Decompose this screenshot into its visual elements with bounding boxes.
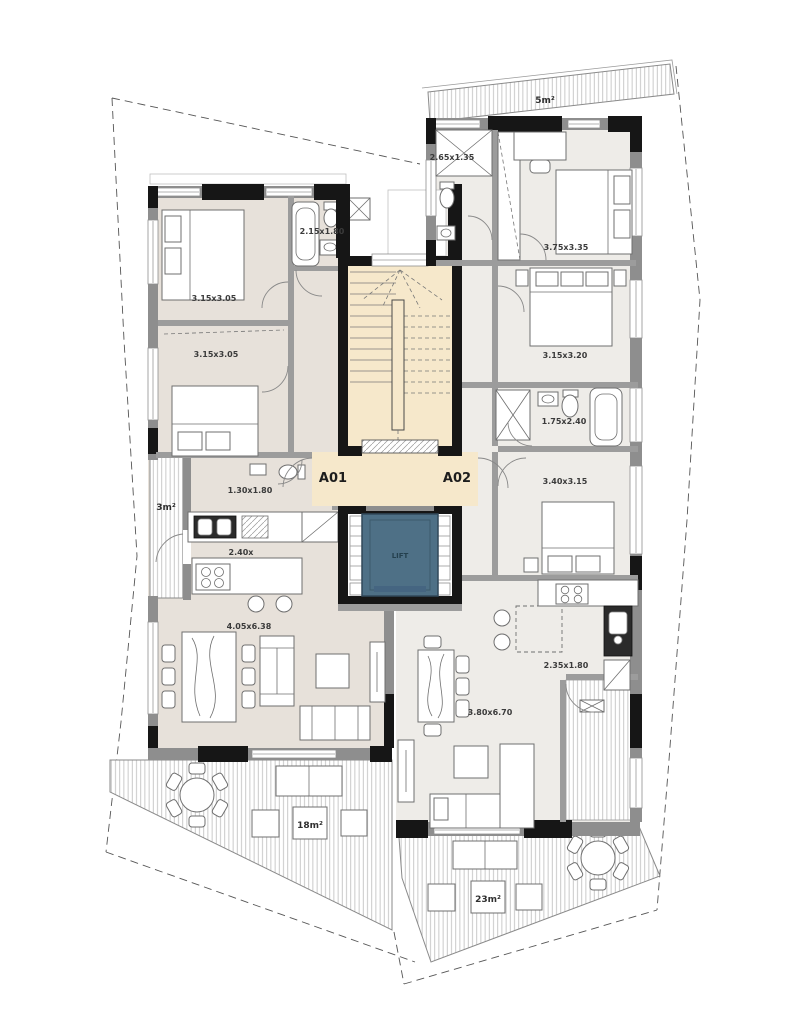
terrace-a01 <box>110 760 392 930</box>
a02-bedroom1-dim: 3.75x3.35 <box>544 243 589 252</box>
a01-bedroom1-dim: 3.15x3.05 <box>192 294 237 303</box>
a02-top-balcony-area: 5m² <box>535 96 555 106</box>
sink-icon <box>538 392 558 406</box>
balcony-side <box>150 455 183 598</box>
doormat <box>362 440 438 453</box>
sofa-icon <box>300 706 370 740</box>
bed-icon <box>172 386 258 456</box>
bed-icon <box>516 268 626 346</box>
coffee-table <box>454 746 488 778</box>
sofa-icon <box>260 636 294 706</box>
a02-bedroom2-dim: 3.15x3.20 <box>543 351 588 360</box>
a01-terrace-area: 18m² <box>297 821 323 831</box>
a01-living-dim: 4.05x6.38 <box>227 622 272 631</box>
a01-bathroom-dim: 2.15x1.80 <box>300 227 345 236</box>
shaft-icon <box>348 198 370 220</box>
kitchen-counter <box>188 512 338 542</box>
a02-kitchen-dim: 2.35x1.80 <box>544 661 589 670</box>
toilet-icon <box>562 390 578 417</box>
a02-bedroom3-dim: 3.40x3.15 <box>543 477 588 486</box>
a01-kitchen-dim: 2.40x <box>229 548 255 557</box>
toilet-icon <box>324 202 338 227</box>
unit-label-a01: A01 <box>319 471 347 486</box>
a01-bedroom2-dim: 3.15x3.05 <box>194 350 239 359</box>
a02-terrace-area: 23m² <box>475 895 501 905</box>
balcony-top <box>428 64 674 122</box>
a02-shower-room-dim: 2.65x1.35 <box>430 153 475 162</box>
a02-bathroom-dim: 1.75x2.40 <box>542 417 587 426</box>
a01-side-balcony-area: 3m² <box>156 503 176 513</box>
sink-icon <box>437 226 455 240</box>
a02-living-dim: 3.80x6.70 <box>468 708 513 717</box>
sink-icon <box>250 464 266 475</box>
tv-bench <box>398 740 414 802</box>
lift-label: LIFT <box>392 552 409 560</box>
bathtub-icon <box>590 388 622 446</box>
bed-icon <box>162 210 244 300</box>
shower-icon <box>496 390 530 440</box>
floor-plan-page: 3.15x3.05 3.15x3.05 2.15x1.80 1.30x1.80 … <box>0 0 795 1024</box>
coffee-table <box>316 654 349 688</box>
toilet-icon <box>440 182 454 208</box>
bed-icon <box>556 170 632 254</box>
unit-label-a02: A02 <box>443 471 471 486</box>
a01-wc-dim: 1.30x1.80 <box>228 486 273 495</box>
floor-plan-drawing: 3.15x3.05 3.15x3.05 2.15x1.80 1.30x1.80 … <box>0 0 795 1024</box>
tv-bench <box>370 642 385 702</box>
